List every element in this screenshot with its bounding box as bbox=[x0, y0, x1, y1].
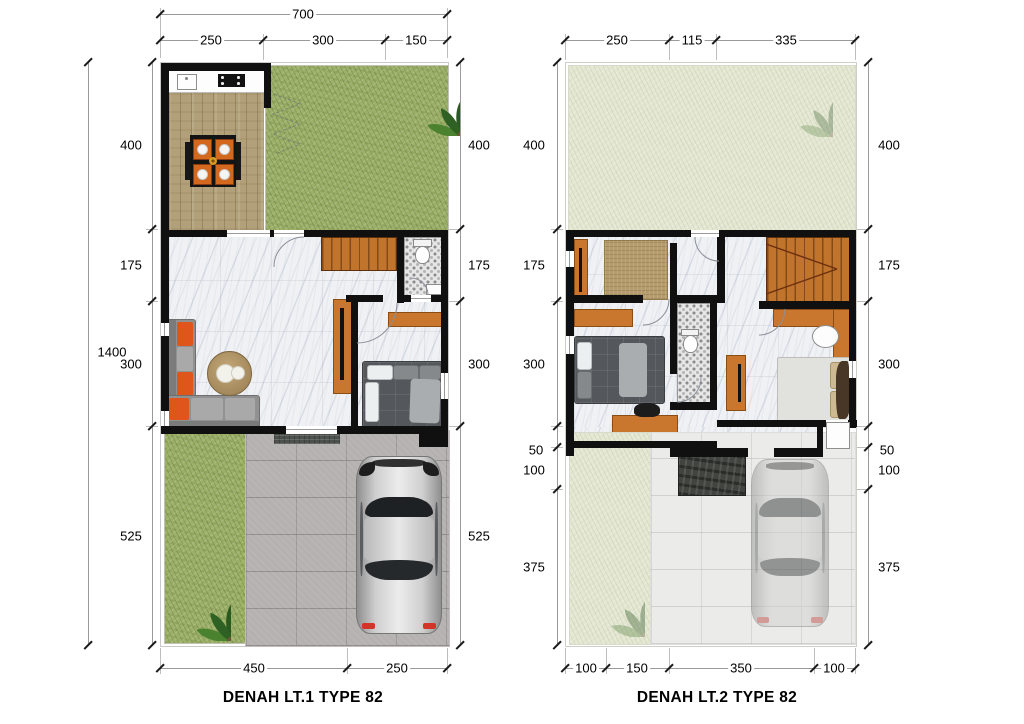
dim-label: 100 bbox=[876, 463, 902, 478]
dim-label: 300 bbox=[521, 357, 547, 372]
dim-extension bbox=[565, 648, 566, 674]
dim-label: 175 bbox=[876, 258, 902, 273]
dim-label: 700 bbox=[290, 7, 316, 22]
door-swing-arc bbox=[677, 378, 701, 402]
dim-label: 400 bbox=[876, 138, 902, 153]
dim-tick bbox=[553, 641, 562, 650]
dim-line bbox=[557, 62, 558, 645]
dim-extension bbox=[347, 648, 348, 674]
door-swing-arc bbox=[274, 237, 304, 267]
dim-tick bbox=[864, 641, 873, 650]
dim-extension bbox=[447, 8, 448, 58]
dim-label: 375 bbox=[521, 560, 547, 575]
door-swing-overlay bbox=[566, 63, 856, 646]
dim-label: 250 bbox=[384, 661, 410, 676]
floor-plan-sheet: 700 250 300 150 1400 400 175 300 525 400… bbox=[0, 0, 1024, 724]
door-swing-overlay bbox=[161, 63, 448, 646]
dim-line bbox=[88, 62, 89, 645]
door-swing-arc bbox=[695, 237, 719, 261]
dim-label: 300 bbox=[118, 357, 144, 372]
dim-label: 150 bbox=[403, 33, 429, 48]
dim-extension bbox=[855, 648, 856, 674]
dim-label: 300 bbox=[876, 357, 902, 372]
dim-label: 175 bbox=[521, 258, 547, 273]
dim-label: 50 bbox=[878, 443, 896, 458]
dim-label: 175 bbox=[118, 258, 144, 273]
dim-label: 50 bbox=[527, 443, 545, 458]
floor-plan-lt1 bbox=[160, 62, 449, 647]
dim-label: 400 bbox=[466, 138, 492, 153]
dim-label: 150 bbox=[624, 661, 650, 676]
dim-extension bbox=[160, 648, 161, 674]
folding-door-zigzag bbox=[273, 94, 300, 154]
dim-extension bbox=[606, 648, 607, 674]
dim-label: 525 bbox=[118, 529, 144, 544]
dim-tick bbox=[148, 641, 157, 650]
dim-extension bbox=[814, 648, 815, 674]
door-swing-arc bbox=[411, 278, 428, 295]
dim-label: 100 bbox=[521, 463, 547, 478]
dim-extension bbox=[160, 8, 161, 58]
dim-label: 450 bbox=[241, 661, 267, 676]
door-swing-arc bbox=[357, 303, 397, 343]
floor-plan-lt2 bbox=[565, 62, 857, 647]
dim-label: 100 bbox=[821, 661, 847, 676]
stair-direction-arrow bbox=[766, 244, 837, 294]
dim-extension bbox=[447, 648, 448, 674]
dim-label: 250 bbox=[198, 33, 224, 48]
dim-line bbox=[868, 62, 869, 645]
dim-line bbox=[152, 62, 153, 645]
dim-label: 350 bbox=[728, 661, 754, 676]
dim-line bbox=[460, 62, 461, 645]
dim-tick bbox=[456, 641, 465, 650]
dim-label: 250 bbox=[604, 33, 630, 48]
door-swing-arc bbox=[759, 309, 785, 335]
dim-extension bbox=[669, 648, 670, 674]
dim-tick bbox=[84, 641, 93, 650]
plan-caption-lt2: DENAH LT.2 TYPE 82 bbox=[637, 689, 797, 707]
dim-label: 400 bbox=[521, 138, 547, 153]
dim-label: 115 bbox=[680, 33, 705, 48]
dim-label: 100 bbox=[573, 661, 599, 676]
dim-label: 300 bbox=[466, 357, 492, 372]
plan-caption-lt1: DENAH LT.1 TYPE 82 bbox=[223, 689, 383, 707]
dim-label: 175 bbox=[466, 258, 492, 273]
dim-label: 400 bbox=[118, 138, 144, 153]
dim-label: 300 bbox=[310, 33, 336, 48]
door-swing-arc bbox=[643, 299, 669, 325]
dim-label: 335 bbox=[773, 33, 799, 48]
dim-label: 375 bbox=[876, 560, 902, 575]
dim-label: 525 bbox=[466, 529, 492, 544]
